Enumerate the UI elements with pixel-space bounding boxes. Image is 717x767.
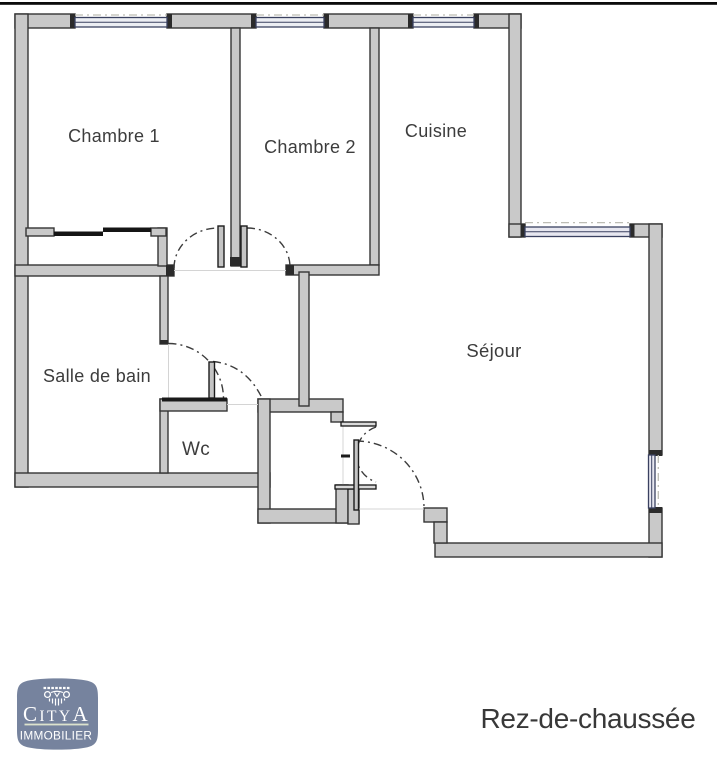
svg-text:Chambre 2: Chambre 2 — [264, 137, 356, 157]
svg-text:Chambre 1: Chambre 1 — [68, 126, 160, 146]
svg-text:IMMOBILIER: IMMOBILIER — [20, 729, 92, 743]
svg-text:Rez-de-chaussée: Rez-de-chaussée — [481, 703, 696, 734]
svg-text:Salle de bain: Salle de bain — [43, 366, 151, 386]
svg-text:Séjour: Séjour — [466, 340, 521, 361]
svg-text:Cuisine: Cuisine — [405, 121, 467, 141]
svg-text:Wc: Wc — [182, 439, 210, 460]
